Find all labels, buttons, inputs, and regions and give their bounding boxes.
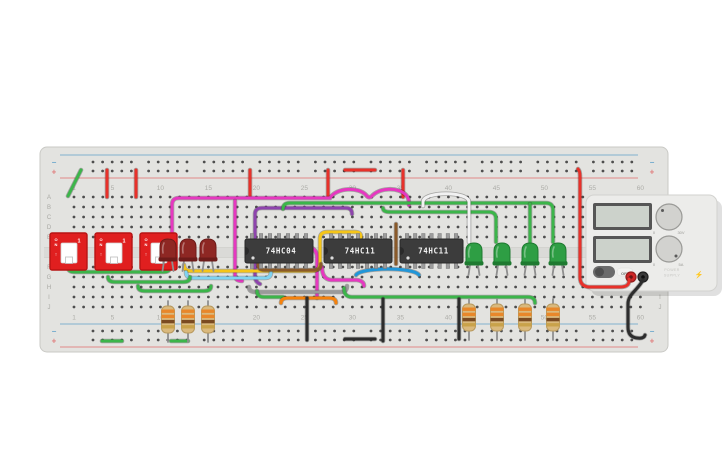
breadboard-hole[interactable] — [92, 206, 95, 209]
breadboard-hole[interactable] — [505, 286, 508, 289]
breadboard-hole[interactable] — [157, 339, 160, 342]
breadboard-hole[interactable] — [207, 296, 210, 299]
breadboard-hole[interactable] — [293, 306, 296, 309]
breadboard-hole[interactable] — [236, 296, 239, 299]
breadboard-hole[interactable] — [313, 226, 316, 229]
breadboard-hole[interactable] — [361, 266, 364, 269]
current-knob[interactable] — [656, 236, 682, 262]
breadboard-hole[interactable] — [287, 170, 290, 173]
voltage-knob[interactable] — [656, 204, 682, 230]
breadboard-hole[interactable] — [399, 286, 402, 289]
breadboard-hole[interactable] — [197, 216, 200, 219]
breadboard-hole[interactable] — [159, 296, 162, 299]
breadboard-hole[interactable] — [111, 206, 114, 209]
breadboard-hole[interactable] — [140, 306, 143, 309]
breadboard-hole[interactable] — [408, 170, 411, 173]
breadboard-hole[interactable] — [543, 286, 546, 289]
breadboard-hole[interactable] — [485, 206, 488, 209]
breadboard-hole[interactable] — [485, 306, 488, 309]
breadboard-hole[interactable] — [495, 196, 498, 199]
breadboard-hole[interactable] — [258, 330, 261, 333]
breadboard-hole[interactable] — [389, 196, 392, 199]
breadboard-hole[interactable] — [121, 196, 124, 199]
breadboard-hole[interactable] — [514, 236, 517, 239]
breadboard-hole[interactable] — [197, 226, 200, 229]
breadboard-hole[interactable] — [101, 196, 104, 199]
breadboard-hole[interactable] — [197, 306, 200, 309]
breadboard-hole[interactable] — [409, 306, 412, 309]
breadboard-hole[interactable] — [476, 196, 479, 199]
breadboard-hole[interactable] — [485, 196, 488, 199]
breadboard-hole[interactable] — [169, 286, 172, 289]
breadboard-hole[interactable] — [485, 276, 488, 279]
breadboard-hole[interactable] — [380, 196, 383, 199]
breadboard-hole[interactable] — [322, 226, 325, 229]
breadboard-hole[interactable] — [255, 306, 258, 309]
breadboard-hole[interactable] — [572, 306, 575, 309]
breadboard-hole[interactable] — [399, 236, 402, 239]
breadboard-hole[interactable] — [418, 236, 421, 239]
breadboard-hole[interactable] — [274, 216, 277, 219]
breadboard-hole[interactable] — [428, 226, 431, 229]
breadboard-hole[interactable] — [399, 276, 402, 279]
breadboard-hole[interactable] — [287, 339, 290, 342]
breadboard-hole[interactable] — [379, 170, 382, 173]
breadboard-hole[interactable] — [278, 330, 281, 333]
breadboard-hole[interactable] — [159, 216, 162, 219]
breadboard-hole[interactable] — [130, 339, 133, 342]
breadboard-hole[interactable] — [82, 206, 85, 209]
breadboard-hole[interactable] — [314, 339, 317, 342]
breadboard-hole[interactable] — [536, 170, 539, 173]
breadboard-hole[interactable] — [130, 216, 133, 219]
breadboard-hole[interactable] — [176, 330, 179, 333]
breadboard-hole[interactable] — [476, 206, 479, 209]
breadboard-hole[interactable] — [303, 226, 306, 229]
breadboard-hole[interactable] — [435, 161, 438, 164]
breadboard-hole[interactable] — [505, 226, 508, 229]
breadboard-hole[interactable] — [92, 306, 95, 309]
breadboard-hole[interactable] — [485, 286, 488, 289]
breadboard-hole[interactable] — [524, 276, 527, 279]
breadboard-hole[interactable] — [543, 206, 546, 209]
breadboard-hole[interactable] — [284, 306, 287, 309]
breadboard-hole[interactable] — [639, 306, 642, 309]
breadboard-hole[interactable] — [245, 226, 248, 229]
breadboard-hole[interactable] — [514, 286, 517, 289]
breadboard-hole[interactable] — [92, 196, 95, 199]
breadboard-hole[interactable] — [601, 296, 604, 299]
breadboard-hole[interactable] — [437, 206, 440, 209]
breadboard-hole[interactable] — [217, 206, 220, 209]
breadboard-hole[interactable] — [159, 226, 162, 229]
breadboard-hole[interactable] — [130, 286, 133, 289]
breadboard-hole[interactable] — [351, 236, 354, 239]
breadboard-hole[interactable] — [418, 226, 421, 229]
breadboard-hole[interactable] — [232, 161, 235, 164]
breadboard-hole[interactable] — [245, 236, 248, 239]
breadboard-hole[interactable] — [490, 339, 493, 342]
breadboard-hole[interactable] — [92, 161, 95, 164]
breadboard-hole[interactable] — [92, 330, 95, 333]
breadboard-hole[interactable] — [409, 266, 412, 269]
breadboard-hole[interactable] — [630, 170, 633, 173]
breadboard-hole[interactable] — [268, 339, 271, 342]
breadboard-hole[interactable] — [159, 306, 162, 309]
breadboard-hole[interactable] — [572, 216, 575, 219]
breadboard-hole[interactable] — [197, 206, 200, 209]
breadboard-hole[interactable] — [232, 339, 235, 342]
dip-switch-2[interactable]: ON↑1 — [95, 233, 132, 270]
breadboard-hole[interactable] — [510, 161, 513, 164]
breadboard-hole[interactable] — [476, 306, 479, 309]
breadboard-hole[interactable] — [556, 339, 559, 342]
breadboard-hole[interactable] — [120, 170, 123, 173]
breadboard-hole[interactable] — [149, 206, 152, 209]
breadboard-hole[interactable] — [490, 161, 493, 164]
breadboard-hole[interactable] — [510, 170, 513, 173]
breadboard-hole[interactable] — [620, 306, 623, 309]
breadboard-hole[interactable] — [92, 339, 95, 342]
breadboard-hole[interactable] — [524, 196, 527, 199]
breadboard-hole[interactable] — [379, 161, 382, 164]
breadboard-hole[interactable] — [389, 276, 392, 279]
breadboard-hole[interactable] — [217, 306, 220, 309]
breadboard-hole[interactable] — [140, 206, 143, 209]
breadboard-hole[interactable] — [130, 306, 133, 309]
breadboard-hole[interactable] — [447, 206, 450, 209]
breadboard-hole[interactable] — [389, 236, 392, 239]
breadboard-hole[interactable] — [514, 276, 517, 279]
breadboard-hole[interactable] — [333, 330, 336, 333]
breadboard-hole[interactable] — [178, 266, 181, 269]
breadboard-hole[interactable] — [457, 226, 460, 229]
breadboard-hole[interactable] — [130, 170, 133, 173]
breadboard-hole[interactable] — [188, 216, 191, 219]
breadboard-hole[interactable] — [457, 286, 460, 289]
breadboard-hole[interactable] — [176, 161, 179, 164]
breadboard-hole[interactable] — [314, 330, 317, 333]
breadboard-hole[interactable] — [533, 206, 536, 209]
breadboard-hole[interactable] — [447, 216, 450, 219]
breadboard-hole[interactable] — [380, 236, 383, 239]
breadboard-hole[interactable] — [149, 296, 152, 299]
dip-switch-1[interactable]: ON↑1 — [50, 233, 87, 270]
breadboard-hole[interactable] — [241, 170, 244, 173]
breadboard-hole[interactable] — [466, 276, 469, 279]
breadboard-hole[interactable] — [592, 330, 595, 333]
breadboard-hole[interactable] — [188, 296, 191, 299]
breadboard-hole[interactable] — [169, 296, 172, 299]
breadboard-hole[interactable] — [207, 206, 210, 209]
breadboard-hole[interactable] — [476, 226, 479, 229]
breadboard-hole[interactable] — [217, 296, 220, 299]
breadboard-hole[interactable] — [147, 339, 150, 342]
breadboard-hole[interactable] — [428, 206, 431, 209]
breadboard-hole[interactable] — [418, 306, 421, 309]
breadboard-hole[interactable] — [466, 266, 469, 269]
breadboard-hole[interactable] — [524, 286, 527, 289]
breadboard-hole[interactable] — [556, 161, 559, 164]
breadboard-hole[interactable] — [351, 196, 354, 199]
breadboard-hole[interactable] — [159, 196, 162, 199]
breadboard-hole[interactable] — [293, 286, 296, 289]
breadboard-hole[interactable] — [274, 236, 277, 239]
breadboard-hole[interactable] — [562, 286, 565, 289]
breadboard-hole[interactable] — [314, 161, 317, 164]
breadboard-hole[interactable] — [303, 276, 306, 279]
breadboard-hole[interactable] — [130, 206, 133, 209]
breadboard-hole[interactable] — [258, 161, 261, 164]
breadboard-hole[interactable] — [236, 306, 239, 309]
breadboard-hole[interactable] — [265, 236, 268, 239]
breadboard-hole[interactable] — [287, 161, 290, 164]
breadboard-hole[interactable] — [120, 161, 123, 164]
breadboard-hole[interactable] — [611, 170, 614, 173]
breadboard-hole[interactable] — [425, 339, 428, 342]
breadboard-hole[interactable] — [188, 226, 191, 229]
breadboard-hole[interactable] — [178, 286, 181, 289]
breadboard-hole[interactable] — [92, 266, 95, 269]
breadboard-hole[interactable] — [543, 236, 546, 239]
breadboard-hole[interactable] — [169, 196, 172, 199]
breadboard-hole[interactable] — [476, 286, 479, 289]
breadboard-hole[interactable] — [121, 276, 124, 279]
breadboard-hole[interactable] — [207, 226, 210, 229]
breadboard-hole[interactable] — [399, 306, 402, 309]
breadboard-hole[interactable] — [178, 236, 181, 239]
breadboard-hole[interactable] — [553, 196, 556, 199]
breadboard-hole[interactable] — [428, 286, 431, 289]
breadboard-hole[interactable] — [457, 206, 460, 209]
breadboard-hole[interactable] — [519, 339, 522, 342]
breadboard-hole[interactable] — [389, 339, 392, 342]
breadboard-hole[interactable] — [203, 170, 206, 173]
breadboard-hole[interactable] — [380, 286, 383, 289]
breadboard-hole[interactable] — [370, 226, 373, 229]
breadboard-hole[interactable] — [514, 206, 517, 209]
breadboard-hole[interactable] — [562, 306, 565, 309]
breadboard-hole[interactable] — [120, 330, 123, 333]
breadboard-hole[interactable] — [408, 339, 411, 342]
breadboard-hole[interactable] — [370, 216, 373, 219]
breadboard-hole[interactable] — [546, 170, 549, 173]
breadboard-hole[interactable] — [101, 216, 104, 219]
breadboard-hole[interactable] — [389, 216, 392, 219]
breadboard-hole[interactable] — [543, 216, 546, 219]
breadboard-hole[interactable] — [380, 216, 383, 219]
breadboard-hole[interactable] — [444, 339, 447, 342]
breadboard-hole[interactable] — [324, 339, 327, 342]
breadboard-hole[interactable] — [490, 170, 493, 173]
breadboard-hole[interactable] — [464, 339, 467, 342]
breadboard-hole[interactable] — [428, 306, 431, 309]
breadboard-hole[interactable] — [361, 216, 364, 219]
breadboard-hole[interactable] — [140, 276, 143, 279]
breadboard-hole[interactable] — [92, 276, 95, 279]
breadboard-hole[interactable] — [447, 276, 450, 279]
ic-chip-3[interactable]: 74HC11 — [400, 234, 463, 269]
breadboard-hole[interactable] — [222, 330, 225, 333]
breadboard-hole[interactable] — [533, 236, 536, 239]
breadboard-hole[interactable] — [389, 286, 392, 289]
breadboard-hole[interactable] — [322, 286, 325, 289]
breadboard-hole[interactable] — [553, 296, 556, 299]
breadboard-hole[interactable] — [500, 339, 503, 342]
breadboard-hole[interactable] — [505, 306, 508, 309]
breadboard-hole[interactable] — [265, 306, 268, 309]
breadboard-hole[interactable] — [140, 296, 143, 299]
breadboard-hole[interactable] — [101, 296, 104, 299]
breadboard-hole[interactable] — [562, 196, 565, 199]
ic-chip-1[interactable]: 74HC04 — [245, 234, 313, 269]
breadboard-hole[interactable] — [476, 276, 479, 279]
breadboard-hole[interactable] — [454, 330, 457, 333]
breadboard-hole[interactable] — [176, 170, 179, 173]
breadboard-hole[interactable] — [533, 276, 536, 279]
power-toggle-knob[interactable] — [595, 268, 604, 277]
breadboard-hole[interactable] — [111, 226, 114, 229]
breadboard-hole[interactable] — [418, 216, 421, 219]
ic-chip-2[interactable]: 74HC11 — [324, 234, 392, 269]
breadboard-hole[interactable] — [322, 306, 325, 309]
breadboard-hole[interactable] — [556, 170, 559, 173]
breadboard-hole[interactable] — [476, 236, 479, 239]
breadboard-hole[interactable] — [274, 286, 277, 289]
breadboard-hole[interactable] — [178, 206, 181, 209]
breadboard-hole[interactable] — [514, 226, 517, 229]
breadboard-hole[interactable] — [217, 216, 220, 219]
breadboard-hole[interactable] — [592, 161, 595, 164]
breadboard-hole[interactable] — [370, 276, 373, 279]
breadboard-hole[interactable] — [121, 226, 124, 229]
breadboard-hole[interactable] — [562, 236, 565, 239]
breadboard-hole[interactable] — [147, 161, 150, 164]
breadboard-hole[interactable] — [481, 330, 484, 333]
breadboard-hole[interactable] — [562, 226, 565, 229]
breadboard-hole[interactable] — [186, 170, 189, 173]
breadboard-hole[interactable] — [333, 161, 336, 164]
breadboard-hole[interactable] — [444, 330, 447, 333]
breadboard-hole[interactable] — [73, 226, 76, 229]
breadboard-hole[interactable] — [149, 276, 152, 279]
breadboard-hole[interactable] — [207, 216, 210, 219]
breadboard-hole[interactable] — [398, 330, 401, 333]
breadboard-hole[interactable] — [380, 226, 383, 229]
breadboard-hole[interactable] — [572, 236, 575, 239]
breadboard-hole[interactable] — [140, 216, 143, 219]
breadboard-hole[interactable] — [217, 286, 220, 289]
breadboard-hole[interactable] — [562, 276, 565, 279]
breadboard-hole[interactable] — [361, 206, 364, 209]
breadboard-hole[interactable] — [447, 226, 450, 229]
breadboard-hole[interactable] — [130, 330, 133, 333]
breadboard-hole[interactable] — [149, 286, 152, 289]
breadboard-hole[interactable] — [268, 330, 271, 333]
breadboard-hole[interactable] — [575, 339, 578, 342]
breadboard-hole[interactable] — [409, 216, 412, 219]
breadboard-hole[interactable] — [82, 306, 85, 309]
breadboard-hole[interactable] — [255, 286, 258, 289]
breadboard-hole[interactable] — [157, 330, 160, 333]
breadboard-hole[interactable] — [533, 216, 536, 219]
breadboard-hole[interactable] — [447, 306, 450, 309]
breadboard-hole[interactable] — [178, 276, 181, 279]
breadboard-hole[interactable] — [341, 216, 344, 219]
breadboard-hole[interactable] — [437, 276, 440, 279]
breadboard-hole[interactable] — [398, 339, 401, 342]
breadboard-hole[interactable] — [245, 266, 248, 269]
breadboard-hole[interactable] — [278, 170, 281, 173]
breadboard-hole[interactable] — [258, 170, 261, 173]
breadboard-hole[interactable] — [543, 306, 546, 309]
breadboard-hole[interactable] — [157, 170, 160, 173]
breadboard-hole[interactable] — [524, 206, 527, 209]
breadboard-hole[interactable] — [352, 161, 355, 164]
breadboard-hole[interactable] — [553, 286, 556, 289]
breadboard-hole[interactable] — [572, 276, 575, 279]
breadboard-hole[interactable] — [601, 306, 604, 309]
breadboard-hole[interactable] — [418, 286, 421, 289]
breadboard-hole[interactable] — [565, 339, 568, 342]
breadboard-hole[interactable] — [130, 226, 133, 229]
breadboard-hole[interactable] — [572, 196, 575, 199]
breadboard-hole[interactable] — [82, 226, 85, 229]
breadboard-hole[interactable] — [343, 161, 346, 164]
breadboard-hole[interactable] — [444, 170, 447, 173]
breadboard-hole[interactable] — [111, 330, 114, 333]
breadboard-hole[interactable] — [572, 296, 575, 299]
breadboard-hole[interactable] — [437, 306, 440, 309]
breadboard-hole[interactable] — [546, 339, 549, 342]
breadboard-hole[interactable] — [500, 170, 503, 173]
breadboard-hole[interactable] — [481, 170, 484, 173]
breadboard-hole[interactable] — [546, 161, 549, 164]
breadboard-hole[interactable] — [621, 161, 624, 164]
breadboard-hole[interactable] — [101, 161, 104, 164]
breadboard-hole[interactable] — [284, 286, 287, 289]
breadboard-hole[interactable] — [611, 330, 614, 333]
breadboard-hole[interactable] — [297, 170, 300, 173]
breadboard-hole[interactable] — [265, 216, 268, 219]
breadboard-hole[interactable] — [351, 266, 354, 269]
breadboard-hole[interactable] — [351, 286, 354, 289]
breadboard-hole[interactable] — [324, 330, 327, 333]
breadboard-hole[interactable] — [111, 170, 114, 173]
breadboard-hole[interactable] — [274, 306, 277, 309]
breadboard-hole[interactable] — [333, 339, 336, 342]
breadboard-hole[interactable] — [332, 286, 335, 289]
breadboard-hole[interactable] — [370, 236, 373, 239]
breadboard-hole[interactable] — [217, 266, 220, 269]
breadboard-hole[interactable] — [602, 339, 605, 342]
breadboard-hole[interactable] — [178, 296, 181, 299]
breadboard-hole[interactable] — [592, 170, 595, 173]
breadboard-hole[interactable] — [73, 276, 76, 279]
breadboard-hole[interactable] — [236, 286, 239, 289]
breadboard-hole[interactable] — [505, 206, 508, 209]
breadboard-hole[interactable] — [543, 296, 546, 299]
breadboard-hole[interactable] — [351, 306, 354, 309]
breadboard-hole[interactable] — [361, 196, 364, 199]
breadboard-hole[interactable] — [409, 236, 412, 239]
breadboard-hole[interactable] — [454, 161, 457, 164]
breadboard-hole[interactable] — [222, 161, 225, 164]
breadboard-hole[interactable] — [245, 306, 248, 309]
breadboard-hole[interactable] — [370, 306, 373, 309]
breadboard-hole[interactable] — [408, 330, 411, 333]
breadboard-hole[interactable] — [457, 276, 460, 279]
